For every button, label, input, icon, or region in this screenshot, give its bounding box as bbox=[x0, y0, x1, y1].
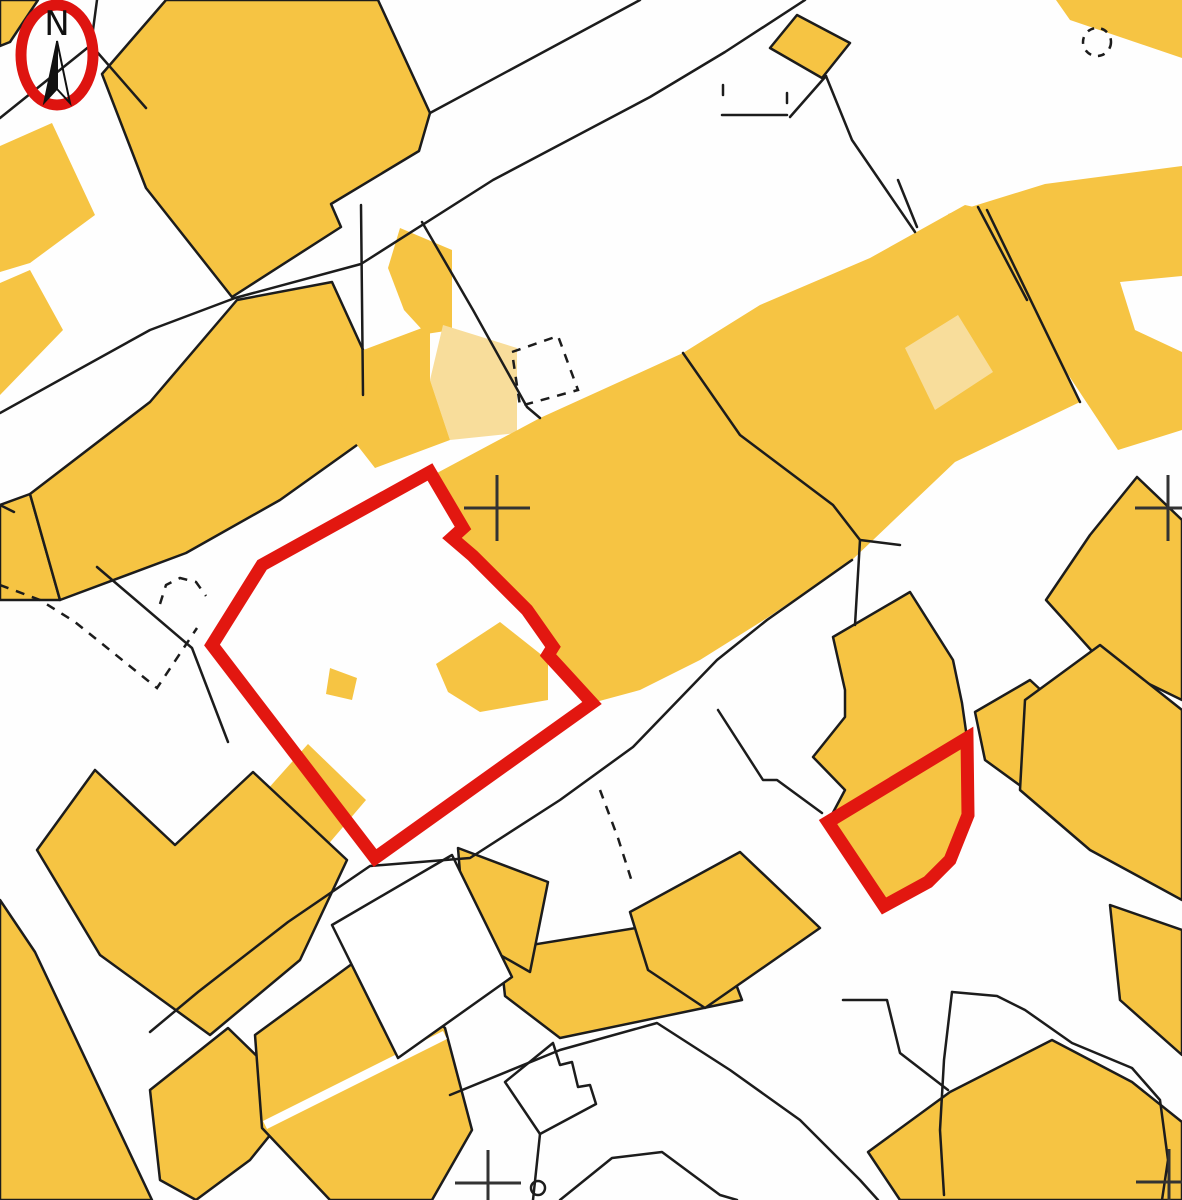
line-road4-link-boundary-line bbox=[843, 1000, 948, 1090]
line-diamond-se-boundary-line bbox=[826, 76, 915, 232]
line-to-red2-boundary-line bbox=[718, 710, 822, 813]
bldg-strip-building bbox=[388, 228, 452, 334]
bldg-small-square-red1-building bbox=[326, 668, 357, 700]
bldg-diamond-building bbox=[770, 15, 850, 78]
bldg-right-low-building bbox=[1110, 905, 1182, 1055]
dashed-circle-symbol bbox=[1083, 28, 1111, 56]
line-tick-link-boundary-line bbox=[790, 76, 826, 117]
north-label: N bbox=[44, 4, 69, 44]
line-road4-lower-boundary-line bbox=[560, 1152, 737, 1200]
dash-arc-left-dashed-boundary-line bbox=[160, 578, 206, 604]
bldg-tr-band-building bbox=[1056, 0, 1182, 58]
parcel-stepped bbox=[505, 1043, 596, 1134]
line-stepped-tail-boundary-line bbox=[533, 1134, 540, 1200]
map-canvas[interactable]: N bbox=[0, 0, 1182, 1200]
bldg-left-wedge-1-building bbox=[0, 123, 95, 272]
bldg-left-block-b-building bbox=[30, 282, 364, 600]
map-frame: N bbox=[0, 0, 1182, 1200]
line-road1-upper-boundary-line bbox=[430, 0, 640, 113]
dash-east-of-red1-dashed-boundary-line bbox=[600, 790, 633, 885]
bldg-left-wedge-2-building bbox=[0, 270, 63, 395]
north-arrow-icon bbox=[44, 41, 57, 103]
line-road4-upper-boundary-line bbox=[450, 1023, 878, 1200]
bldg-inside-red1-building bbox=[436, 622, 548, 712]
